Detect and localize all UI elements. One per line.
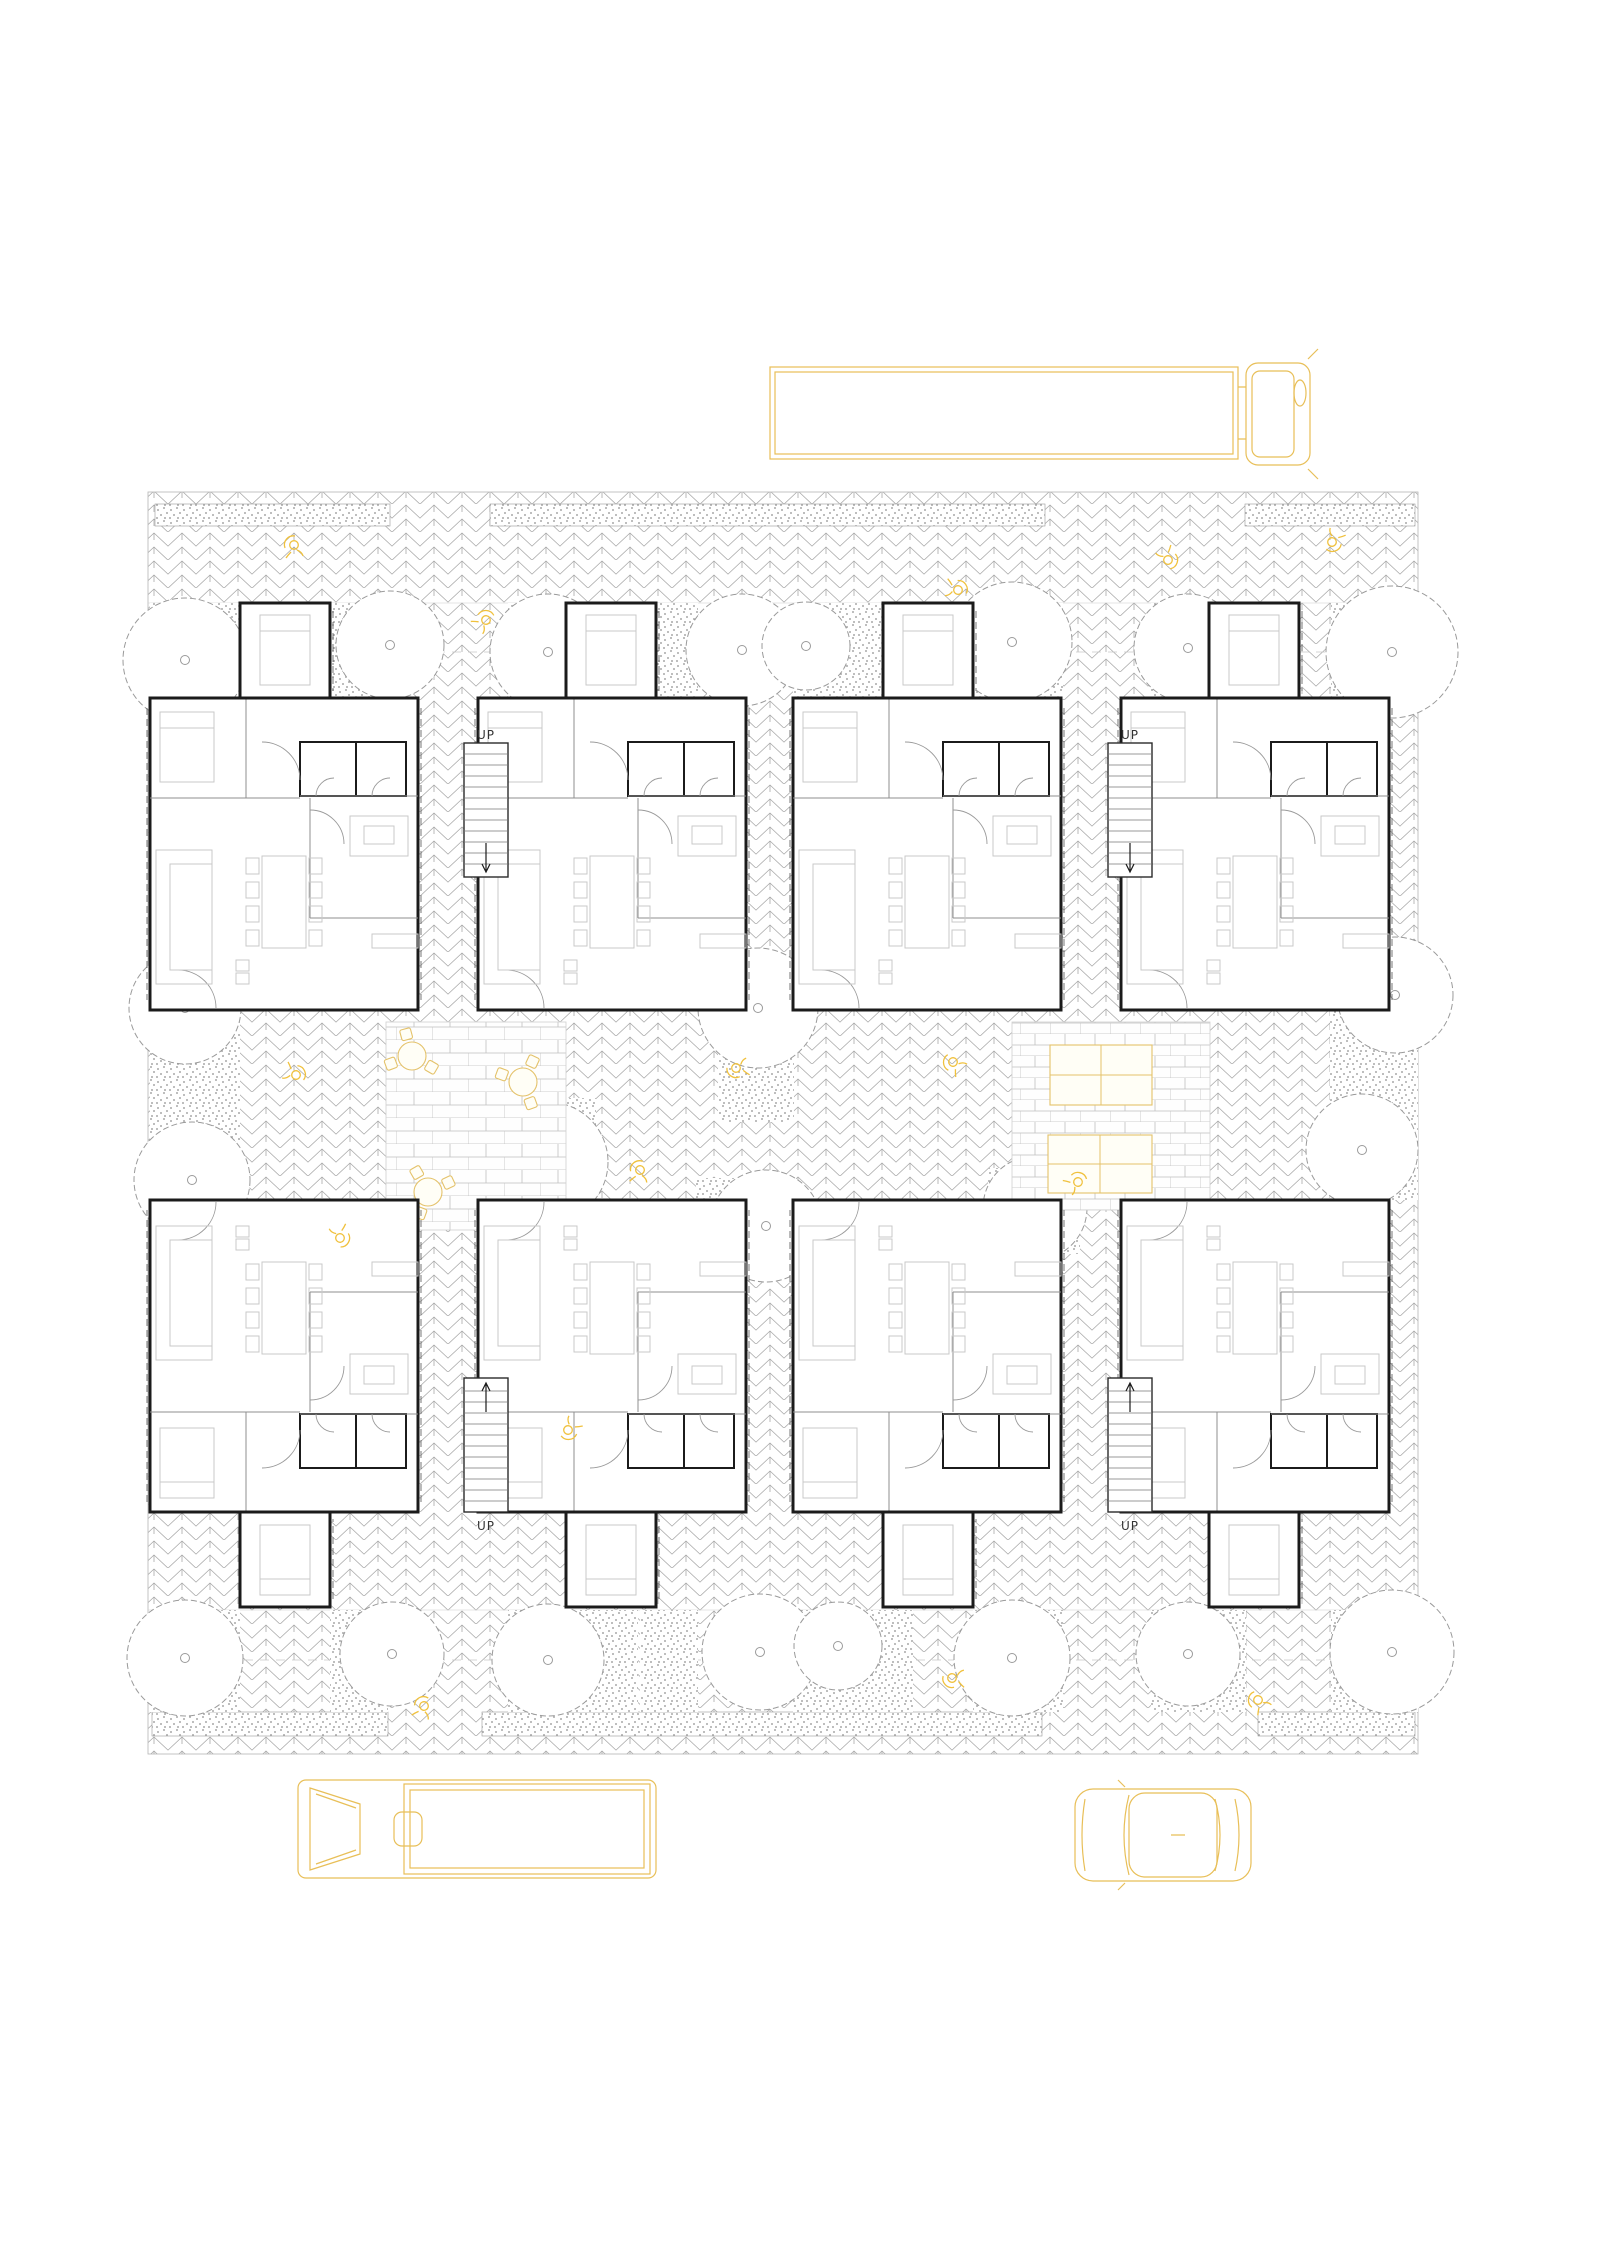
east-courtyard (1012, 1022, 1210, 1210)
dwelling-body-lower (790, 1200, 1064, 1512)
tree-trunk (544, 648, 553, 657)
tree-trunk (181, 656, 190, 665)
tree-trunk (762, 1222, 771, 1231)
stair-core-lower (464, 1378, 508, 1512)
dwelling-body-upper (1118, 698, 1392, 1010)
tree-trunk (1008, 1654, 1017, 1663)
tree (336, 591, 444, 699)
tree-trunk (1358, 1146, 1367, 1155)
tree-trunk (1008, 638, 1017, 647)
trailer-truck-outline (770, 349, 1318, 479)
tree (1330, 1590, 1454, 1714)
tree-trunk (802, 642, 811, 651)
dwelling-wing-upper (883, 603, 976, 698)
stair-core-upper (464, 743, 508, 877)
tree-trunk (388, 1650, 397, 1659)
tree-trunk (544, 1656, 553, 1665)
dwelling-body-upper (475, 698, 749, 1010)
tree (794, 1602, 882, 1690)
car-outline (1075, 1780, 1251, 1890)
dwelling-wing-lower (1209, 1512, 1302, 1607)
floor-plan-page: UPUPUPUP (0, 0, 1600, 2262)
stair-core-lower (1108, 1378, 1152, 1512)
courtyard-table-set (1048, 1135, 1152, 1193)
tree-trunk (756, 1648, 765, 1657)
tree-trunk (1184, 1650, 1193, 1659)
dwelling-wing-lower (240, 1512, 333, 1607)
tree (492, 1604, 604, 1716)
tree (127, 1600, 243, 1716)
dwelling-body-lower (1118, 1200, 1392, 1512)
dwelling-wing-lower (883, 1512, 976, 1607)
tree (1306, 1094, 1418, 1206)
tree-trunk (181, 1654, 190, 1663)
dwelling-body-lower (475, 1200, 749, 1512)
tree-trunk (188, 1176, 197, 1185)
dwelling-wing-upper (240, 603, 333, 698)
dwelling-body-lower (147, 1200, 421, 1512)
stair-up-label: UP (477, 1519, 495, 1533)
tree-trunk (1388, 648, 1397, 657)
dwelling-wing-upper (566, 603, 659, 698)
sidewalk-strip-top (155, 504, 390, 526)
sidewalk-strip-bottom (1258, 1712, 1415, 1736)
chair (399, 1028, 412, 1041)
tree (954, 1600, 1070, 1716)
dwelling-wing-lower (566, 1512, 659, 1607)
sidewalk-strip-bottom (482, 1712, 1042, 1736)
site-plan-drawing: UPUPUPUP (0, 0, 1600, 2262)
tree-trunk (1388, 1648, 1397, 1657)
round-table (509, 1068, 537, 1096)
courtyard-table-set (1050, 1045, 1152, 1105)
stair-core-upper (1108, 743, 1152, 877)
tree (1136, 1602, 1240, 1706)
tree-trunk (386, 641, 395, 650)
dwelling-body-upper (147, 698, 421, 1010)
sidewalk-strip-top (1245, 504, 1415, 526)
stair-up-label: UP (477, 728, 495, 742)
tree-trunk (834, 1642, 843, 1651)
box-truck-outline (298, 1780, 656, 1878)
dwelling-body-upper (790, 698, 1064, 1010)
tree-trunk (738, 646, 747, 655)
stair-up-label: UP (1121, 1519, 1139, 1533)
garden-bed (640, 1610, 698, 1712)
sidewalk-strip-top (490, 504, 1045, 526)
tree-trunk (1184, 644, 1193, 653)
tree (762, 602, 850, 690)
tree (340, 1602, 444, 1706)
round-table (398, 1042, 426, 1070)
tree-trunk (754, 1004, 763, 1013)
dwelling-wing-upper (1209, 603, 1302, 698)
stair-up-label: UP (1121, 728, 1139, 742)
